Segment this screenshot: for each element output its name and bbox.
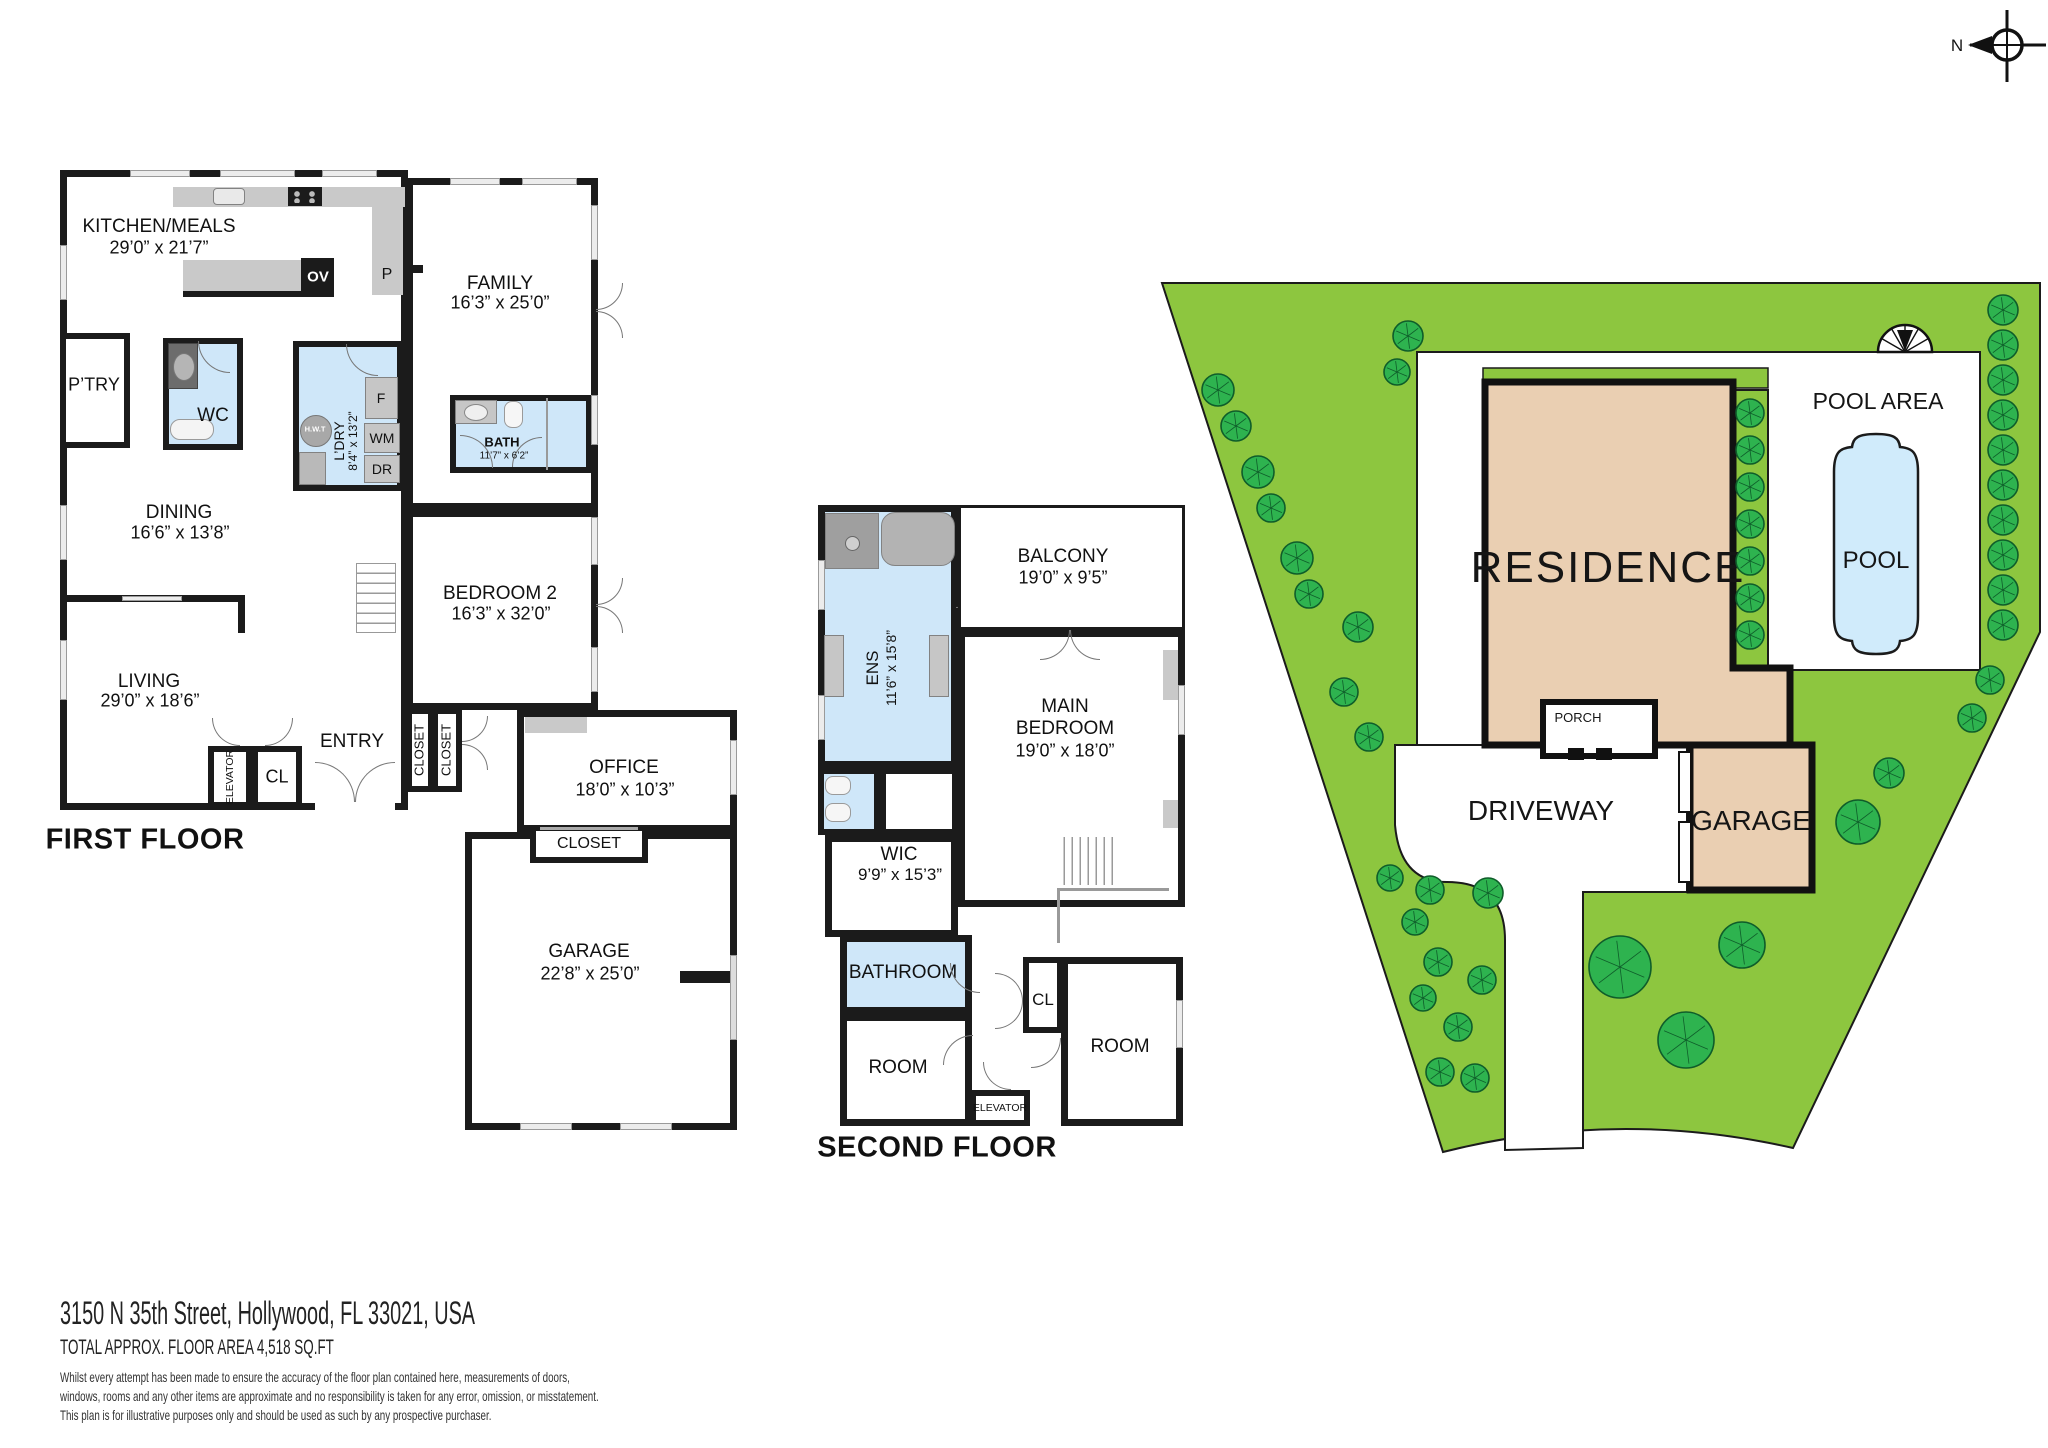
window [450, 178, 500, 185]
bidet-icon [825, 803, 851, 822]
cl-door-arc2 [995, 1001, 1023, 1029]
dryer-label: DR [372, 461, 392, 477]
window [591, 205, 598, 260]
pantry-nook-wall [405, 265, 423, 273]
garage-door2 [1679, 822, 1691, 882]
stairs-first-floor [356, 563, 396, 633]
entry-label: ENTRY [320, 731, 384, 753]
area-text: TOTAL APPROX. FLOOR AREA 4,518 SQ.FT [60, 1336, 334, 1360]
bathtub-icon [881, 512, 955, 566]
window [620, 1123, 672, 1130]
window [818, 695, 825, 740]
ens-vanity-left [824, 635, 844, 697]
stair-railing-2 [1057, 888, 1060, 943]
bath-divider [546, 398, 548, 470]
laundry-dims: 8’4” x 13’2” [347, 411, 361, 470]
hot-water-tank-label: H.W.T [305, 426, 326, 435]
laundry-name: L’DRY [331, 411, 347, 470]
window [60, 245, 67, 300]
ensuite-label: ENS 11’6” x 15’8” [863, 630, 899, 706]
main-bedroom-dims: 19’0” x 18’0” [1015, 741, 1114, 762]
laundry-sink [299, 452, 326, 485]
bedroom2-label: BEDROOM 2 [443, 583, 557, 605]
window [130, 170, 190, 177]
pool-shape [1834, 434, 1918, 654]
balcony-dims: 19’0” x 9’5” [1018, 568, 1107, 589]
hall-closet-door-arc1 [462, 716, 488, 742]
ens-vanity-right [929, 635, 949, 697]
hall-closet-door-arc2 [462, 744, 488, 770]
bath-sink-icon [464, 404, 488, 421]
porch-step1 [1568, 748, 1584, 760]
landing [880, 768, 958, 835]
garage-wall-stub [680, 971, 737, 983]
kitchen-label: KITCHEN/MEALS [82, 216, 235, 238]
porch-step2 [1596, 748, 1612, 760]
bedroom2-dims: 16’3” x 32’0” [451, 604, 550, 625]
disclaimer-line1: Whilst every attempt has been made to en… [60, 1368, 570, 1387]
bath-label: BATH [484, 436, 519, 451]
elevator-first-label: ELEVATOR [224, 750, 236, 804]
site-garage-label: GARAGE [1691, 805, 1811, 836]
ensuite-name: ENS [863, 630, 883, 706]
disclaimer: Whilst every attempt has been made to en… [60, 1368, 960, 1425]
pool-label: POOL [1843, 547, 1910, 574]
office-closet-label: CLOSET [557, 835, 621, 853]
window [60, 505, 67, 560]
washing-machine-label: WM [370, 430, 395, 446]
second-floor-plan: ENS 11’6” x 15’8” BALCONY 19’0” x 9’5” M… [815, 500, 1195, 1175]
footer: 3150 N 35th Street, Hollywood, FL 33021,… [60, 1295, 960, 1425]
kitchen-sink-icon [213, 188, 245, 205]
fridge-label: F [377, 390, 386, 406]
room-b-door-arc [1031, 1038, 1061, 1068]
main-bedroom-l2: BEDROOM [1016, 718, 1114, 740]
bedroom2-door-arc1 [596, 578, 623, 605]
second-bathroom-label: BATHROOM [849, 962, 957, 984]
dining-label: DINING [146, 502, 213, 524]
window [60, 640, 67, 700]
window [322, 170, 377, 177]
floor-plan-page: OV P KITCHEN/MEALS 29’0” x 21’7” FAMILY … [0, 0, 2048, 1448]
north-compass-icon: N [1925, 2, 2048, 97]
stairs-second-floor [1057, 837, 1119, 885]
cl-first-label: CL [265, 767, 288, 788]
kitchen-dims: 29’0” x 21’7” [109, 238, 208, 259]
address-line: 3150 N 35th Street, Hollywood, FL 33021,… [60, 1295, 960, 1332]
toilet-icon [825, 776, 851, 795]
office-dims: 18’0” x 10’3” [575, 780, 674, 801]
office-builtin [525, 717, 587, 733]
window [591, 395, 598, 445]
garage-side-opening [730, 955, 737, 1040]
wc-basin-icon [173, 353, 195, 381]
hall-closet-1-label: CLOSET [413, 724, 428, 776]
living-dims: 29’0” x 18’6” [100, 691, 199, 712]
wic-dims: 9’9” x 15’3” [858, 865, 942, 885]
dining-living-wall-jog [238, 595, 245, 633]
laundry-label: L’DRY 8’4” x 13’2” [331, 411, 361, 470]
family-door-arc1 [596, 283, 623, 310]
window [520, 1123, 572, 1130]
window [818, 560, 825, 610]
garage-dims: 22’8” x 25’0” [540, 964, 639, 985]
pantry-nook-label: P [382, 266, 393, 284]
stove-burners-icon [292, 190, 318, 203]
window [220, 170, 295, 177]
bath-toilet-icon [504, 401, 523, 428]
dining-living-window [122, 596, 182, 601]
residence-label: RESIDENCE [1471, 543, 1746, 592]
room-a-label: ROOM [868, 1057, 927, 1079]
bath-dims: 11’7” x 6’2” [480, 450, 529, 462]
cl-door-arc1 [995, 973, 1023, 1001]
compass-north-label: N [1951, 36, 1963, 55]
dining-dims: 16’6” x 13’8” [130, 523, 229, 544]
pool-area-label: POOL AREA [1813, 388, 1944, 414]
window [591, 647, 598, 692]
wc-label: WC [197, 405, 229, 427]
disclaimer-line2: windows, rooms and any other items are a… [60, 1387, 599, 1406]
window [591, 517, 598, 565]
shower-drain-icon [845, 536, 860, 551]
second-cl-label: CL [1032, 990, 1054, 1010]
main-bedroom-l1: MAIN [1041, 696, 1089, 718]
bedroom2-door-arc2 [596, 606, 623, 633]
family-door-arc2 [596, 311, 623, 338]
balcony-label: BALCONY [1018, 546, 1109, 568]
disclaimer-line3: This plan is for illustrative purposes o… [60, 1406, 491, 1425]
pantry-label: P’TRY [68, 375, 120, 396]
window [522, 178, 577, 185]
second-floor-title: SECOND FLOOR [817, 1131, 1057, 1164]
second-elevator-label: ELEVATOR [973, 1102, 1027, 1114]
second-elevator-door-arc [983, 1062, 1011, 1090]
office-label: OFFICE [589, 757, 659, 779]
office-closet-bifold [540, 827, 638, 830]
family-dims: 16’3” x 25’0” [450, 293, 549, 314]
ensuite-dims: 11’6” x 15’8” [883, 630, 899, 706]
address-text: 3150 N 35th Street, Hollywood, FL 33021,… [60, 1295, 475, 1332]
garage-label: GARAGE [548, 941, 629, 963]
garage-door1 [1679, 752, 1691, 812]
hall-closet-2-label: CLOSET [440, 724, 455, 776]
wic-label: WIC [881, 844, 918, 866]
driveway-label: DRIVEWAY [1468, 795, 1615, 826]
entry-door-gap [315, 801, 395, 810]
room-b-label: ROOM [1090, 1036, 1149, 1058]
first-floor-title: FIRST FLOOR [46, 823, 245, 856]
area-line: TOTAL APPROX. FLOOR AREA 4,518 SQ.FT [60, 1336, 960, 1360]
family-label: FAMILY [467, 273, 533, 295]
window [730, 740, 737, 795]
site-plan: RESIDENCE PORCH GARAGE POOL POOL AREA DR… [1148, 270, 2048, 1170]
oven-label: OV [307, 268, 329, 285]
first-floor-plan: OV P KITCHEN/MEALS 29’0” x 21’7” FAMILY … [60, 165, 750, 1170]
porch-label: PORCH [1555, 710, 1602, 725]
living-label: LIVING [118, 671, 180, 693]
